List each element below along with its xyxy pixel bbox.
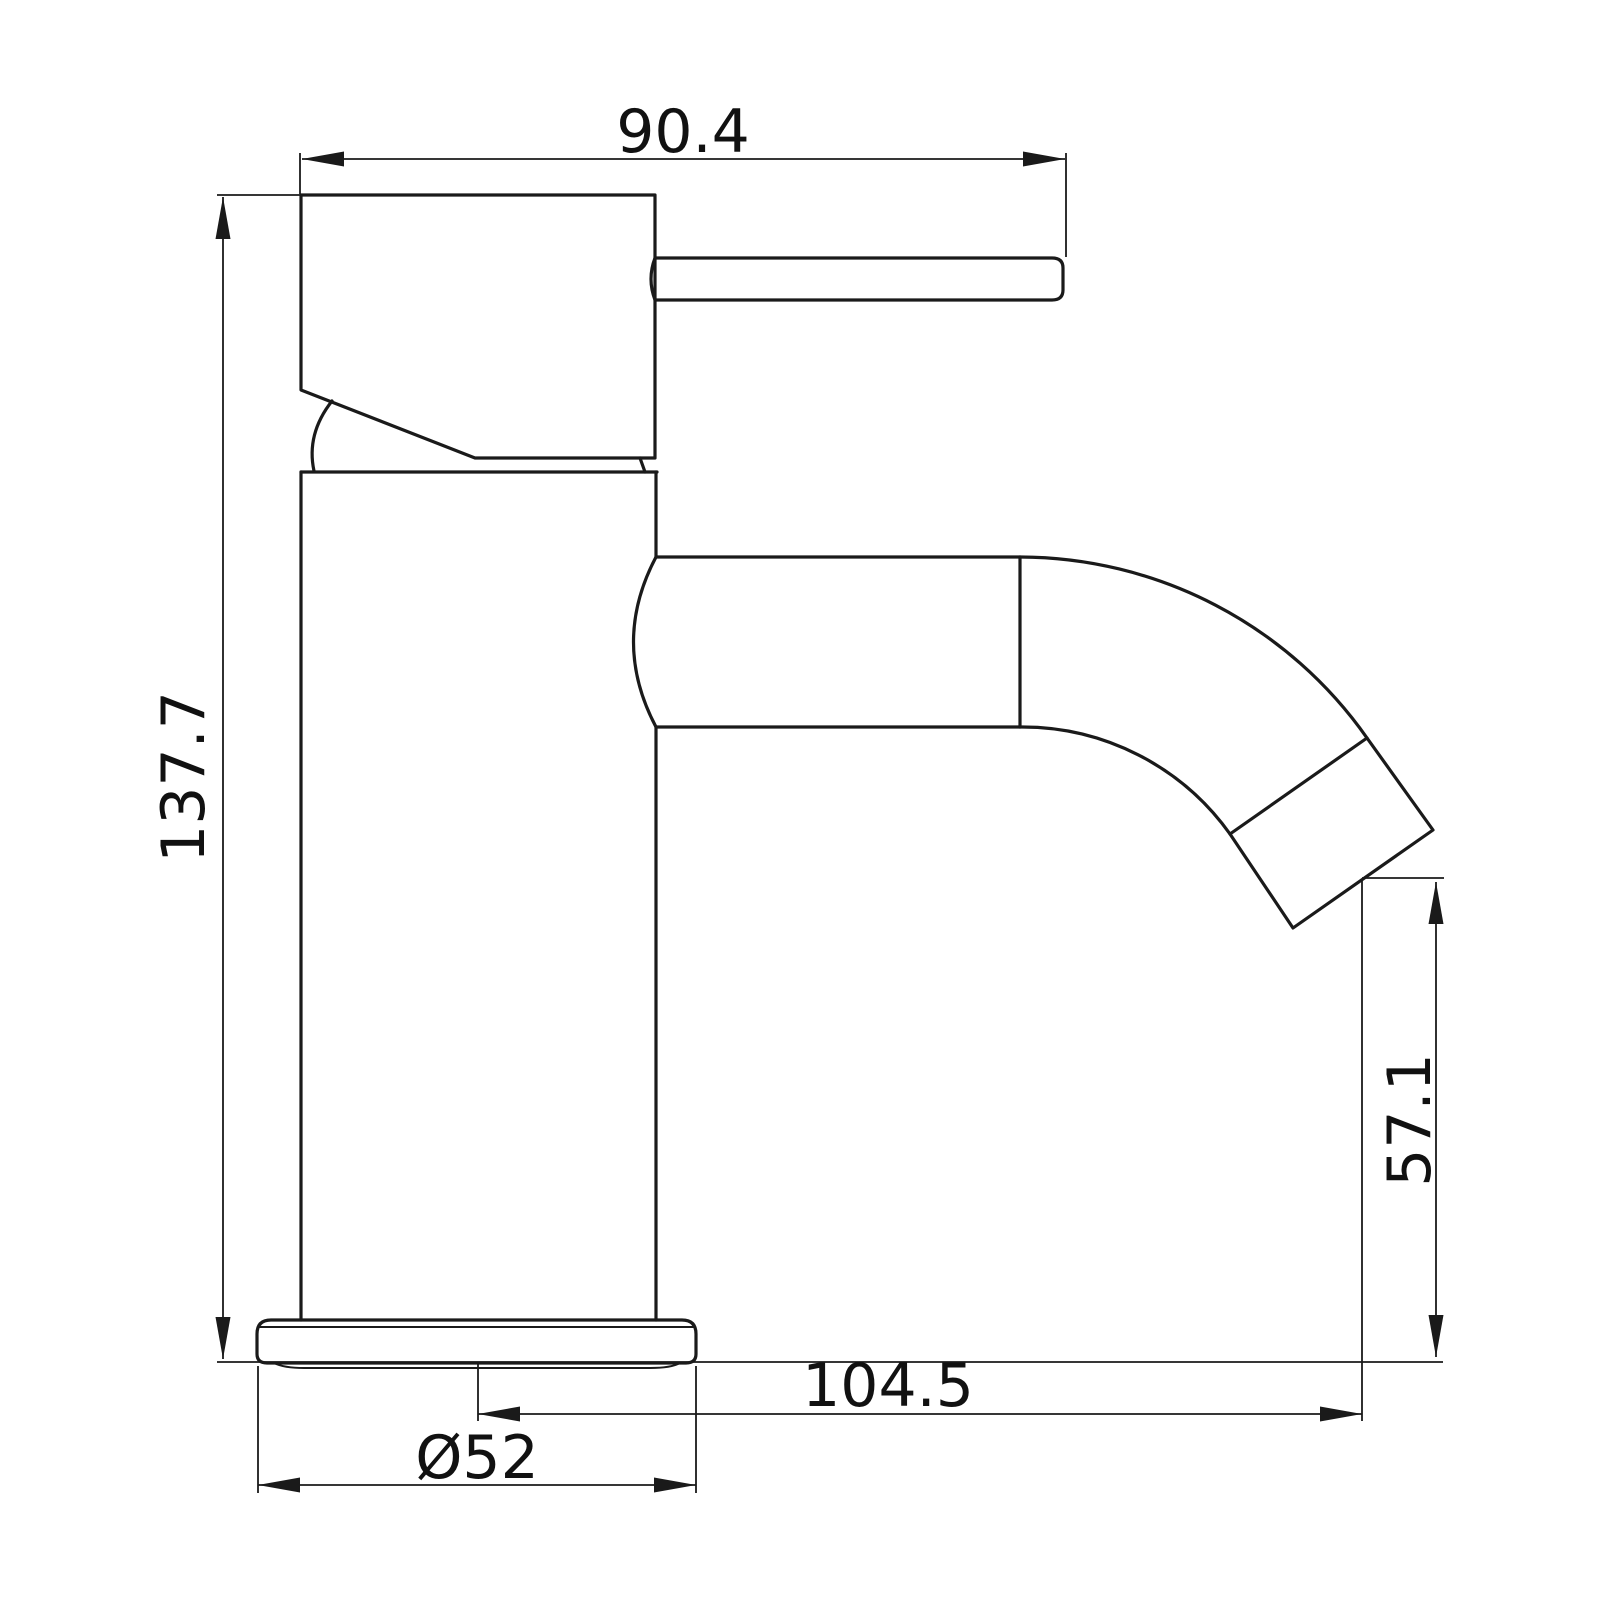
label-spout-outlet-height: 57.1 [1375,1053,1445,1187]
dim-57-arrow-top [1429,882,1444,924]
dim-57-arrow-bottom [1429,1315,1444,1357]
label-handle-reach-top: 90.4 [616,97,750,167]
spout-bend-outer [1020,557,1367,738]
dim-104-arrow-right [1320,1407,1362,1422]
drawing-canvas: 90.4 137.7 104.5 57.1 Ø52 [0,0,1600,1600]
dim-104-arrow-left [478,1407,520,1422]
spout-outlet-tip [1230,738,1433,928]
handle-lever [651,258,1063,300]
mixer-head-body [301,195,655,458]
dimension-labels: 90.4 137.7 104.5 57.1 Ø52 [149,97,1445,1493]
spout-bend-inner [1020,727,1230,834]
dim-90-arrow-left [302,152,344,167]
spout-joint-line-2 [1230,738,1367,834]
dimension-lines [216,152,1445,1494]
label-base-diameter: Ø52 [415,1423,539,1493]
faucet-technical-drawing: 90.4 137.7 104.5 57.1 Ø52 [0,0,1600,1600]
spout-column-joint-arc [634,557,657,727]
dim-52-arrow-left [258,1478,300,1493]
dim-137-arrow-bottom [216,1317,231,1359]
label-spout-reach: 104.5 [802,1351,974,1421]
dim-52-arrow-right [654,1478,696,1493]
faucet-outline [257,195,1433,1368]
dim-137-arrow-top [216,197,231,239]
head-column-step [640,458,645,472]
label-overall-height: 137.7 [149,691,219,863]
handle-cap-arc [312,401,332,471]
dim-90-arrow-right [1023,152,1065,167]
